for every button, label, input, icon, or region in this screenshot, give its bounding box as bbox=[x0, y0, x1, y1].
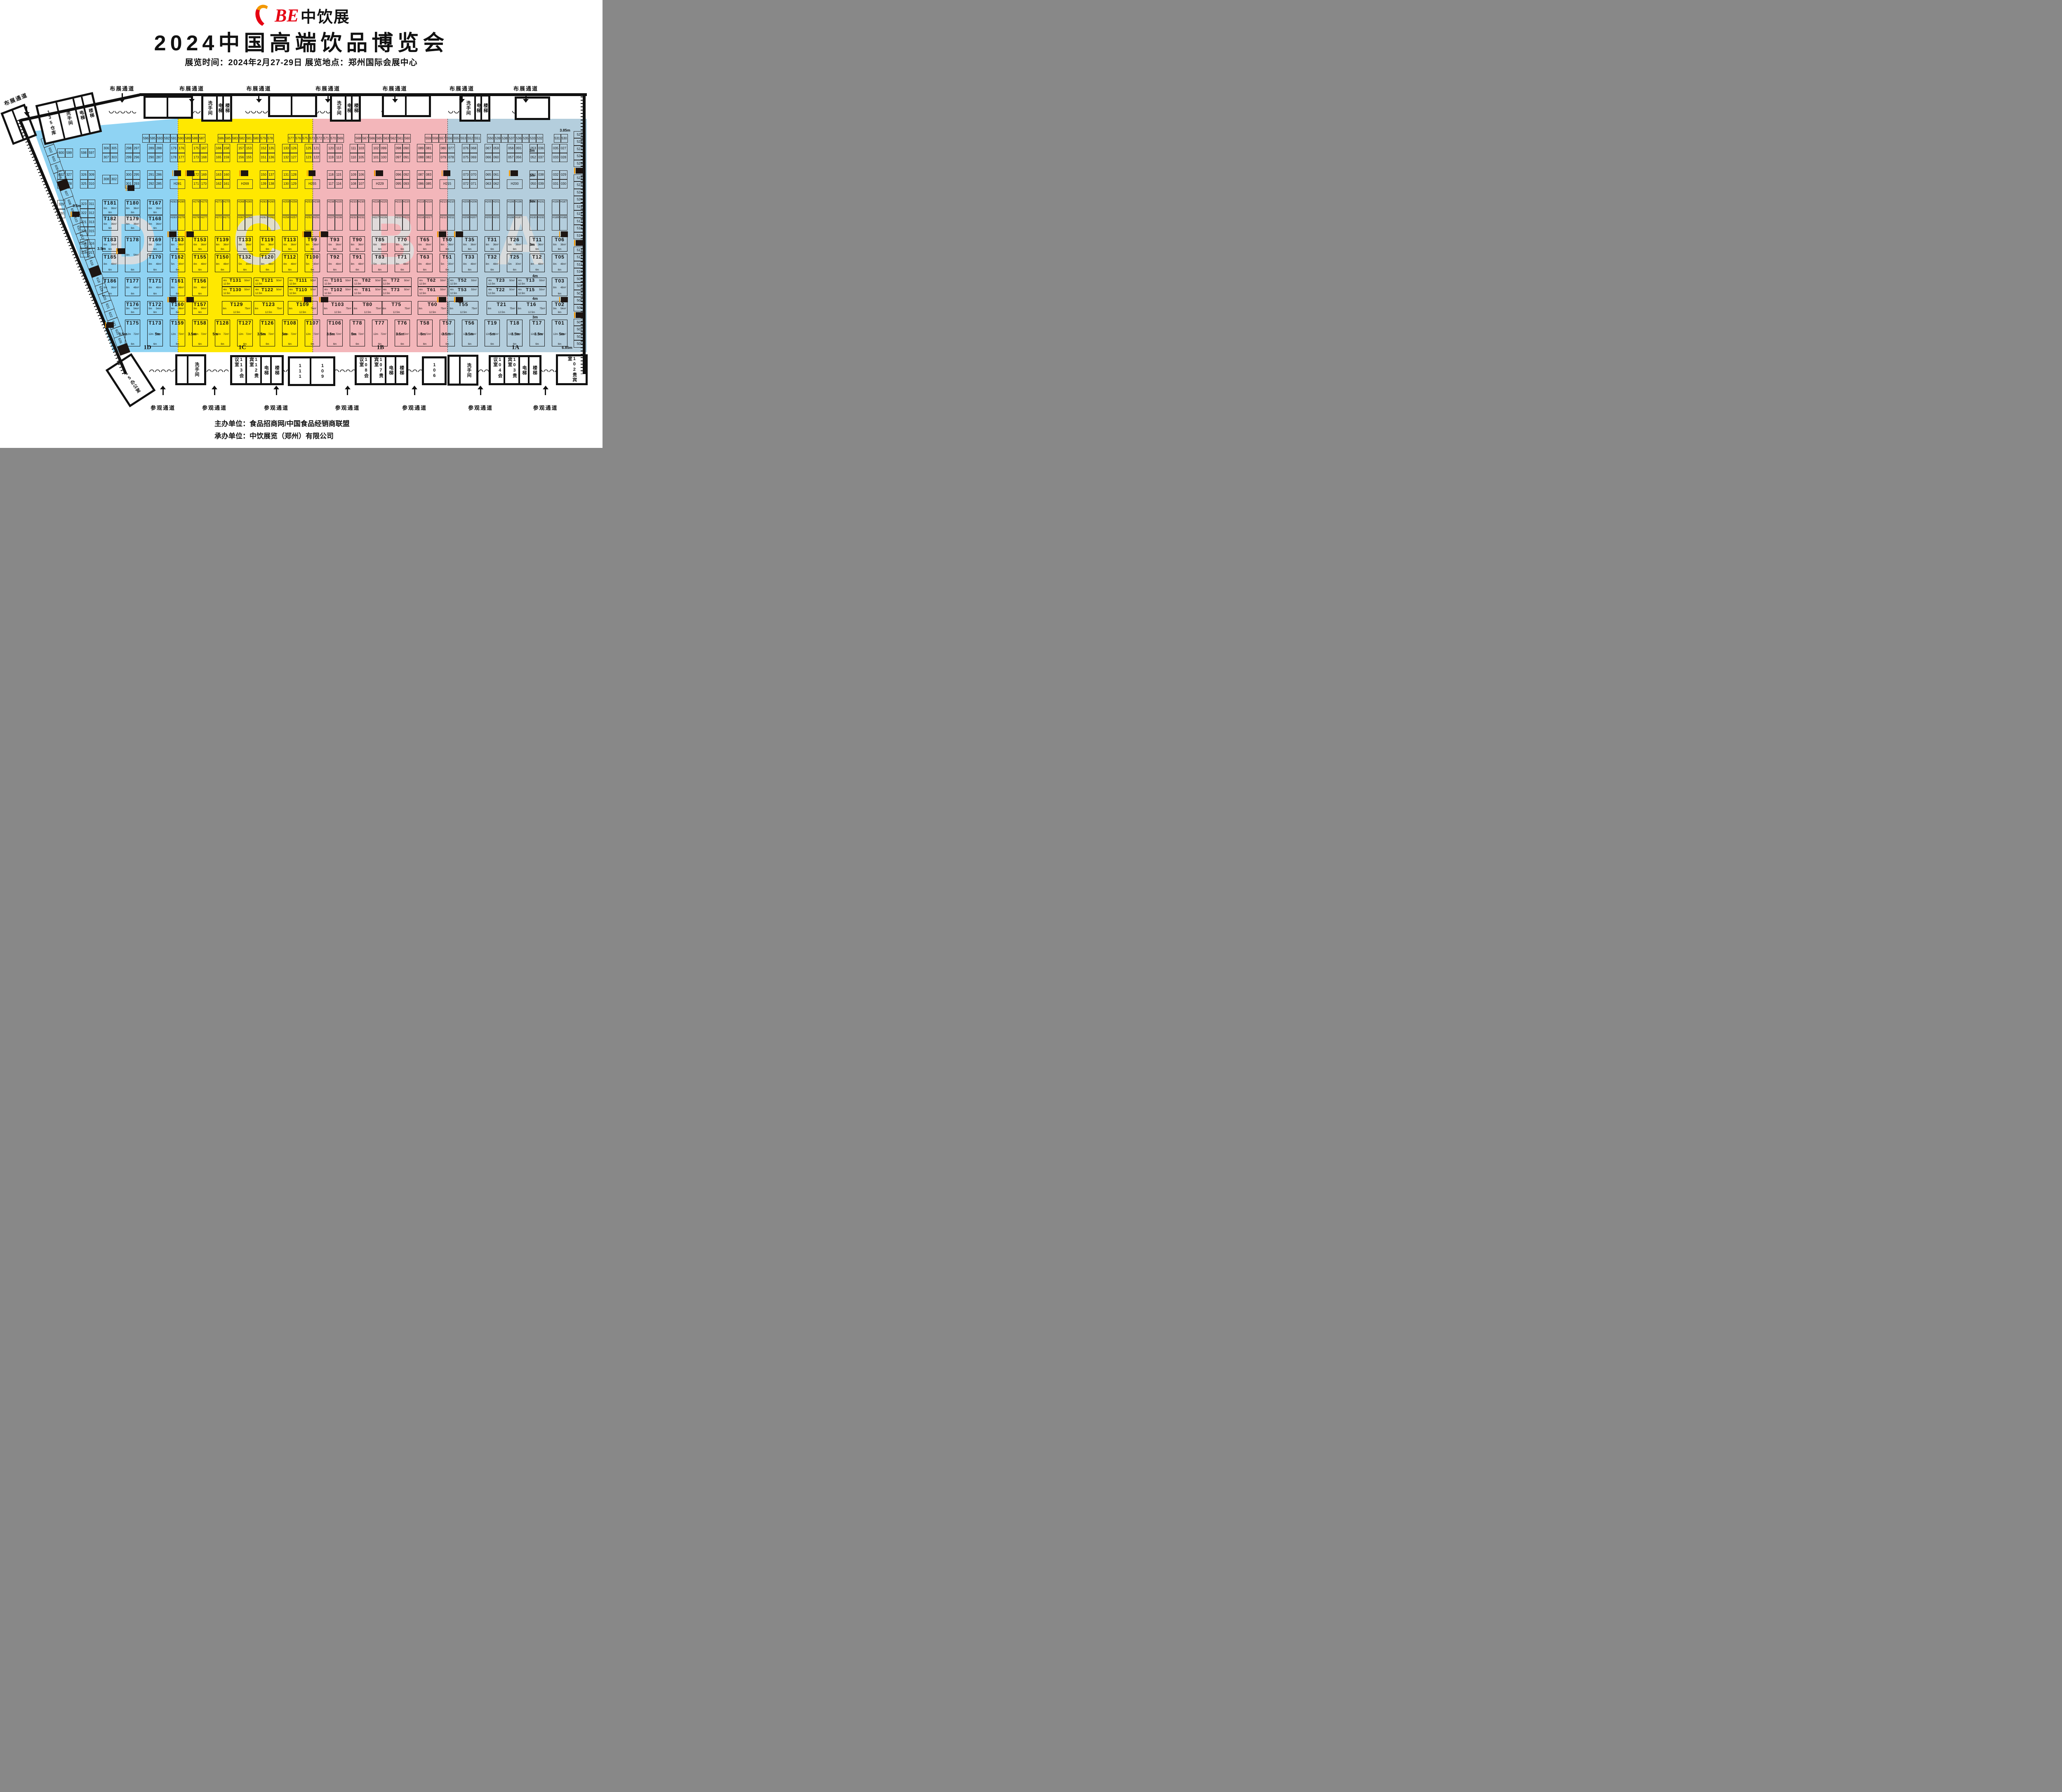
booth-T82: 4mT8250m²12.5m bbox=[353, 278, 383, 287]
aisle-label: 4m bbox=[532, 274, 538, 278]
strip-booth: 596 bbox=[142, 134, 149, 143]
aisle-label: 5m bbox=[420, 332, 426, 336]
booth-size-row: 6m75m² bbox=[450, 308, 478, 310]
booth-label: T33 bbox=[463, 254, 476, 259]
booth-area: 48m² bbox=[156, 287, 162, 289]
booth-h: H277 bbox=[200, 215, 208, 231]
strip-booth: 579 bbox=[260, 134, 267, 143]
booth-T180: T1806m36m²6m bbox=[125, 200, 141, 215]
booth-h-wide: H200 bbox=[507, 179, 523, 189]
booth-left-size: 6m bbox=[450, 308, 453, 310]
booth-cell: 308 bbox=[102, 175, 110, 184]
booth-left-size: 4m bbox=[488, 280, 492, 282]
strip-booth: 576 bbox=[295, 134, 302, 143]
booth-T182: T1826m36m²6m bbox=[102, 215, 118, 231]
aisle-label: 3.5m bbox=[97, 247, 106, 251]
booth-area: 36m² bbox=[111, 207, 117, 210]
booth-cell: 052 bbox=[530, 153, 537, 162]
booth-row2: 12.5m bbox=[383, 283, 410, 285]
booth-h: H219 bbox=[417, 200, 425, 215]
visit-channel-label: 参观通道 bbox=[202, 403, 227, 411]
room-113会议室: 113会议室 bbox=[232, 357, 247, 383]
booth-cell: 297 bbox=[133, 144, 141, 153]
strip-booth: 555 bbox=[453, 134, 460, 143]
booth-left-size: 4m bbox=[383, 289, 386, 291]
room-电梯: 电梯 bbox=[476, 97, 482, 120]
booth-row: 4mT13050m² bbox=[224, 288, 250, 292]
booth-row2: 12.5m bbox=[488, 292, 515, 295]
arrow-head-icon bbox=[478, 386, 483, 389]
booth-bottom-size: 12.5m bbox=[419, 311, 447, 314]
booth-left-size: 4m bbox=[325, 289, 328, 291]
booth-T172: T1729m54m²6m bbox=[147, 301, 163, 315]
aisle-label: 3.5m bbox=[534, 332, 543, 336]
booth-bottom-size: 6m bbox=[104, 269, 117, 271]
room-label: 电梯 bbox=[476, 103, 480, 113]
booth-T131: 4mT13150m²12.5m bbox=[222, 278, 252, 287]
room-电梯: 电梯 bbox=[520, 357, 530, 383]
aisle-label: 5m bbox=[490, 332, 495, 336]
booth-left-size: 8m bbox=[553, 287, 556, 289]
room-label: 楼梯 bbox=[224, 103, 229, 113]
booth-T23: 4mT2350m²12.5m bbox=[487, 278, 517, 287]
booth-T80: T806m75m²12.5m bbox=[353, 301, 383, 315]
booth-label: T182 bbox=[104, 216, 117, 221]
booth-cell: 083 bbox=[425, 170, 433, 179]
arrow-stem bbox=[327, 93, 329, 99]
booth-label: T150 bbox=[216, 254, 229, 259]
booth-label: T60 bbox=[419, 302, 447, 307]
booth-bottom-size: 12.5m bbox=[518, 311, 546, 314]
booth-cell: 162 bbox=[215, 179, 223, 188]
booth-h: H212 bbox=[440, 215, 447, 231]
room-电梯: 电梯 bbox=[262, 357, 272, 383]
booth-cell: 036 bbox=[537, 144, 545, 153]
booth-width-size: 12.5m bbox=[450, 292, 457, 295]
booth-cell: 056 bbox=[515, 153, 523, 162]
booth-size-row: 6m75m² bbox=[518, 308, 546, 310]
aisle-label: 5m bbox=[282, 332, 287, 336]
booth-area: 36m² bbox=[179, 244, 184, 246]
room-label: 电梯 bbox=[346, 103, 351, 113]
booth-cell: 073 bbox=[462, 170, 470, 179]
booth-cell: 112 bbox=[335, 144, 343, 153]
booth-left-size: 12m bbox=[553, 333, 558, 336]
booth-bottom-size: 6m bbox=[126, 311, 139, 314]
channel-arrow bbox=[273, 386, 279, 395]
booth-area: 72m² bbox=[179, 333, 184, 336]
pillar bbox=[304, 297, 311, 303]
booth-width-size: 12.5m bbox=[354, 292, 361, 295]
booth-row: 4mT7250m² bbox=[383, 278, 410, 283]
arrow-stem bbox=[26, 106, 27, 112]
arrow-stem bbox=[461, 93, 463, 99]
booth-area: 36m² bbox=[381, 244, 386, 246]
booth-T22: 4mT2250m²12.5m bbox=[487, 287, 517, 296]
booth-label: T171 bbox=[148, 278, 162, 283]
booth-size-row: 6m36m² bbox=[104, 244, 117, 246]
booth-left-size: 12m bbox=[148, 333, 153, 336]
booth-bottom-size: 6m bbox=[261, 248, 274, 251]
booth-cell: 129 bbox=[290, 179, 298, 188]
booth-T93: T936m36m²6m bbox=[327, 236, 343, 252]
booth-h: H209 bbox=[462, 200, 470, 215]
channel-arrow bbox=[119, 93, 125, 103]
booth-left-size: 6m bbox=[383, 308, 386, 310]
channel-arrow bbox=[345, 386, 351, 395]
logo-cn: 中饮展 bbox=[301, 4, 350, 27]
booth-left-size: 6m bbox=[488, 308, 491, 310]
booth-h: H280 bbox=[178, 200, 186, 215]
booth-cell: 311 bbox=[88, 200, 96, 209]
booth-bottom-size: 6m bbox=[328, 343, 341, 346]
booth-bottom-size: 6m bbox=[553, 248, 566, 251]
booth-left-size: 8m bbox=[216, 263, 219, 266]
room bbox=[270, 97, 292, 115]
booth-size-row: 8m48m² bbox=[148, 263, 162, 266]
booth-cell: 057 bbox=[507, 153, 515, 162]
room-104会议室: 104会议室 bbox=[491, 357, 505, 383]
strip-booth: 562 bbox=[390, 134, 397, 143]
booth-label: T93 bbox=[328, 237, 341, 242]
strip-booth: 583 bbox=[232, 134, 239, 143]
room bbox=[177, 356, 188, 383]
booth-T53: 4mT5350m²12.5m bbox=[449, 287, 479, 296]
wall-2 bbox=[583, 93, 586, 374]
booth-area: 50m² bbox=[375, 280, 381, 282]
booth-bottom-size: 6m bbox=[148, 311, 162, 314]
booth-label: T02 bbox=[553, 302, 566, 307]
strip-booth: 566 bbox=[369, 134, 376, 143]
booth-left-size: 6m bbox=[396, 244, 399, 246]
booth-cell: 312 bbox=[88, 209, 96, 218]
booth-T121: 4mT12150m²12.5m bbox=[254, 278, 284, 287]
booth-label: T185 bbox=[104, 254, 117, 259]
pillar-door-mark bbox=[172, 170, 174, 176]
arrow-head-icon bbox=[325, 99, 331, 103]
booth-T171: T1718m48m²6m bbox=[147, 278, 163, 296]
booth-bottom-size: 6m bbox=[126, 343, 139, 346]
booth-bottom-size: 12.5m bbox=[450, 311, 478, 314]
strip-booth: 560 bbox=[404, 134, 411, 143]
strip-booth: 532 bbox=[536, 134, 543, 143]
booth-h: H213 bbox=[440, 200, 447, 215]
booth-cell: 296 bbox=[133, 153, 141, 162]
pillar-door-mark bbox=[437, 231, 438, 237]
booth-h: H273 bbox=[215, 200, 223, 215]
booth-h: H201 bbox=[492, 200, 500, 215]
booth-row2: 12.5m bbox=[290, 283, 316, 285]
pillar bbox=[439, 297, 446, 303]
booth-label: T112 bbox=[283, 254, 297, 259]
booth-left-size: 8m bbox=[193, 287, 197, 289]
booth-T175: T17512m72m²6m bbox=[125, 320, 141, 346]
booth-left-size: 6m bbox=[283, 244, 287, 246]
booth-left-size: 4m bbox=[450, 289, 454, 291]
booth-cell: 155 bbox=[245, 153, 253, 162]
booth-label: T06 bbox=[553, 237, 566, 242]
cbe-crescent-icon bbox=[253, 2, 276, 28]
room-label: 108会议室 bbox=[358, 357, 368, 383]
arrow-head-icon bbox=[392, 99, 398, 103]
booth-left-size: 6m bbox=[306, 244, 309, 246]
aisle-label: 3.5m bbox=[442, 332, 451, 336]
booth-cell: 095 bbox=[395, 179, 403, 188]
booth-T111: 4mT11150m²12.5m bbox=[288, 278, 318, 287]
channel-arrow bbox=[256, 93, 262, 103]
booth-cell: 171 bbox=[192, 179, 200, 188]
booth-h: H192 bbox=[537, 215, 545, 231]
booth-cell: 290 bbox=[147, 153, 155, 162]
arrow-stem bbox=[394, 93, 395, 99]
booth-bottom-size: 6m bbox=[508, 248, 521, 251]
aisle-label: 3m bbox=[529, 148, 534, 153]
booth-label: T129 bbox=[223, 302, 251, 307]
booth-area: 54m² bbox=[560, 308, 566, 310]
booth-left-size: 6m bbox=[419, 308, 422, 310]
booth-h: H262 bbox=[260, 215, 268, 231]
room-label: 102贵宾室 bbox=[567, 356, 577, 383]
booth-left-size: 9m bbox=[126, 254, 129, 257]
booth-left-size: 6m bbox=[104, 223, 107, 226]
pillar-door-mark bbox=[559, 297, 560, 303]
booth-width-size: 12.5m bbox=[518, 292, 525, 295]
booth-area: 48m² bbox=[358, 263, 364, 266]
booth-left-size: 6m bbox=[486, 244, 489, 246]
booth-cell: 176 bbox=[178, 144, 186, 153]
booth-width-size: 12.5m bbox=[325, 283, 332, 285]
booth-cell: 110 bbox=[350, 153, 358, 162]
booth-width-size: 12.5m bbox=[224, 292, 231, 295]
strip-booth: 595 bbox=[149, 134, 156, 143]
booth-cell: 128 bbox=[290, 170, 298, 179]
booth-T176: T1769m54m²6m bbox=[125, 301, 141, 315]
booth-row: 4mT5350m² bbox=[450, 288, 477, 292]
room-label: 洗手间 bbox=[336, 101, 341, 115]
booth-cell: 153 bbox=[245, 144, 253, 153]
booth-cell: 072 bbox=[462, 179, 470, 188]
booth-bottom-size: 6m bbox=[486, 343, 499, 346]
booth-area: 36m² bbox=[156, 207, 162, 210]
booth-cell: 156 bbox=[237, 153, 245, 162]
booth-left-size: 9m bbox=[126, 308, 129, 310]
booth-row: 4mT7350m² bbox=[383, 288, 410, 292]
pillar-door-mark bbox=[307, 170, 308, 176]
booth-bottom-size: 6m bbox=[396, 269, 409, 271]
booth-area: 48m² bbox=[291, 263, 297, 266]
booth-area: 72m² bbox=[246, 333, 252, 336]
booth-bottom-size: 6m bbox=[193, 269, 207, 271]
booth-label: T122 bbox=[261, 288, 273, 292]
booth-cell: 299 bbox=[125, 153, 133, 162]
bottom-facility-block: 洗手间 bbox=[175, 354, 206, 385]
booth-cell: 107 bbox=[358, 179, 365, 188]
booth-cell: 086 bbox=[417, 179, 425, 188]
booth-row2: 12.5m bbox=[354, 283, 381, 285]
booth-h: H261 bbox=[268, 215, 275, 231]
booth-label: T01 bbox=[553, 320, 566, 325]
booth-h: H231 bbox=[358, 215, 365, 231]
booth-label: T05 bbox=[553, 254, 566, 259]
booth-cell: 310 bbox=[88, 179, 96, 188]
booth-left-size: 6m bbox=[373, 244, 377, 246]
booth-cell: 168 bbox=[200, 153, 208, 162]
booth-area: 48m² bbox=[268, 263, 274, 266]
booth-left-size: 12m bbox=[373, 333, 378, 336]
booth-h: H222 bbox=[395, 215, 403, 231]
booth-bottom-size: 6m bbox=[283, 269, 297, 271]
doorway-arcs bbox=[108, 111, 137, 117]
booth-size-row: 6m36m² bbox=[283, 244, 297, 246]
booth-area: 30m² bbox=[313, 263, 319, 266]
booth-area: 50m² bbox=[404, 289, 410, 291]
top-facility-block bbox=[144, 96, 193, 119]
top-facility-block: 洗手间电梯楼梯 bbox=[330, 94, 361, 122]
booth-area: 36m² bbox=[201, 244, 207, 246]
channel-arrow bbox=[523, 93, 529, 103]
booth-bottom-size: 6m bbox=[148, 293, 162, 295]
booth-label: T155 bbox=[193, 254, 207, 259]
booth-label: T26 bbox=[508, 237, 521, 242]
booth-area: 50m² bbox=[404, 280, 410, 282]
room-电梯: 电梯 bbox=[386, 357, 396, 383]
booth-T15: 4mT1550m²12.5m bbox=[517, 287, 547, 296]
booth-T21: T216m75m²12.5m bbox=[487, 301, 517, 315]
strip-booth: 589 bbox=[184, 134, 191, 143]
pillar-door-mark bbox=[437, 297, 438, 303]
booth-T52: 4mT5250m²12.5m bbox=[449, 278, 479, 287]
booth-area: 72m² bbox=[224, 333, 229, 336]
booth-cell: 598 bbox=[80, 148, 88, 158]
booth-size-row: 8m48m² bbox=[351, 263, 364, 266]
booth-area: 36m² bbox=[179, 308, 184, 310]
booth-size-row: 8m48m² bbox=[193, 263, 207, 266]
visit-channel-label: 参观通道 bbox=[402, 403, 427, 411]
booth-left-size: 4m bbox=[518, 289, 522, 291]
arrow-head-icon bbox=[543, 386, 548, 389]
booth-h: H276 bbox=[192, 200, 200, 215]
strip-booth: 536 bbox=[515, 134, 522, 143]
booth-cell: 130 bbox=[282, 179, 290, 188]
bottom-facility-block: 洗手间 bbox=[447, 355, 478, 386]
booth-row: 4mT6150m² bbox=[419, 288, 446, 292]
booth-h: H230 bbox=[358, 200, 365, 215]
room-洗手间: 洗手间 bbox=[188, 356, 204, 383]
booth-bottom-size: 6m bbox=[351, 343, 364, 346]
booth-area: 75m² bbox=[376, 308, 381, 310]
arrow-head-icon bbox=[119, 99, 125, 103]
booth-area: 30m² bbox=[515, 263, 521, 266]
booth-label: T121 bbox=[261, 278, 273, 283]
booth-cell: 326 bbox=[80, 170, 88, 179]
booth-left-size: 12m bbox=[171, 333, 176, 336]
booth-label: T111 bbox=[296, 278, 307, 283]
booth-row2: 12.5m bbox=[488, 283, 515, 285]
booth-T110: 4mT11050m²12.5m bbox=[288, 287, 318, 296]
booth-left-size: 4m bbox=[518, 280, 522, 282]
logo-en: BE bbox=[275, 7, 299, 25]
channel-arrow bbox=[543, 386, 548, 395]
booth-label: T175 bbox=[126, 320, 139, 325]
booth-h: H217 bbox=[425, 215, 433, 231]
booth-bottom-size: 6m bbox=[418, 248, 431, 251]
booth-area: 48m² bbox=[111, 263, 117, 266]
strip-booth: 537 bbox=[508, 134, 515, 143]
room-楼梯: 楼梯 bbox=[482, 97, 488, 120]
pillar bbox=[187, 170, 194, 176]
booth-left-size: 6m bbox=[351, 244, 354, 246]
booth-h: H210 bbox=[447, 200, 455, 215]
arrow-stem bbox=[545, 389, 546, 395]
booth-size-row: 8m48m² bbox=[553, 263, 566, 266]
booth-cell: 062 bbox=[492, 179, 500, 188]
booth-width-size: 12.5m bbox=[290, 283, 297, 285]
booth-bottom-size: 6m bbox=[126, 227, 139, 230]
booth-bottom-size: 12.5m bbox=[354, 311, 381, 314]
footer-undertaker: 承办单位：中饮展览（郑州）有限公司 bbox=[214, 430, 334, 440]
booth-cell: 061 bbox=[492, 170, 500, 179]
room-label: 洗手间 bbox=[65, 111, 73, 126]
booth-h: H199 bbox=[507, 200, 515, 215]
booth-width-size: 12.5m bbox=[224, 283, 231, 285]
room-label: 111 bbox=[297, 363, 302, 379]
booth-cell: 060 bbox=[492, 153, 500, 162]
booth-h: H223 bbox=[395, 200, 403, 215]
strip-booth: 592 bbox=[163, 134, 170, 143]
booth-label: T76 bbox=[396, 320, 409, 325]
booth-cell: 109 bbox=[350, 170, 358, 179]
booth-label: T62 bbox=[427, 278, 436, 283]
booth-T02: T029m54m²6m bbox=[552, 301, 567, 315]
booth-left-size: 4m bbox=[290, 289, 293, 291]
booth-h: H208 bbox=[462, 215, 470, 231]
booth-area: 48m² bbox=[134, 287, 139, 289]
booth-T119: T1196m36m²6m bbox=[260, 236, 275, 252]
room-112贵宾室: 112贵宾室 bbox=[247, 357, 262, 383]
booth-label: T123 bbox=[255, 302, 282, 307]
booth-h: H267 bbox=[237, 215, 245, 231]
booth-bottom-size: 6m bbox=[553, 293, 566, 295]
arrow-head-icon bbox=[345, 386, 351, 389]
booth-T65: T656m36m²6m bbox=[417, 236, 433, 252]
bottom-facility-block: 113会议室112贵宾室电梯楼梯 bbox=[230, 355, 284, 385]
booth-area: 54m² bbox=[134, 254, 139, 257]
booth-T32: T328m48m²6m bbox=[485, 254, 500, 272]
arrow-stem bbox=[276, 389, 277, 395]
booth-left-size: 5m bbox=[171, 263, 174, 266]
booth-cell: 135 bbox=[268, 144, 275, 153]
booth-cell: 132 bbox=[282, 153, 290, 162]
booth-label: T169 bbox=[148, 237, 162, 242]
booth-bottom-size: 6m bbox=[193, 248, 207, 251]
booth-label: T75 bbox=[383, 302, 410, 307]
booth-row: 4mT2250m² bbox=[488, 288, 515, 292]
pillar-door-mark bbox=[126, 185, 127, 191]
booth-area: 75m² bbox=[346, 308, 351, 310]
booth-cell: 166 bbox=[215, 144, 223, 153]
booth-h: H218 bbox=[417, 215, 425, 231]
booth-h: H252 bbox=[305, 215, 313, 231]
booth-left-size: 5m bbox=[373, 263, 377, 266]
arrow-head-icon bbox=[459, 99, 465, 103]
visit-channel-label: 参观通道 bbox=[468, 403, 493, 411]
booth-T25: T255m30m²6m bbox=[507, 254, 523, 272]
booth-cell: 117 bbox=[327, 179, 335, 188]
booth-left-size: 6m bbox=[104, 244, 107, 246]
visit-channel-label: 参观通道 bbox=[264, 403, 289, 411]
booth-bottom-size: 6m bbox=[351, 248, 364, 251]
room bbox=[407, 97, 429, 115]
